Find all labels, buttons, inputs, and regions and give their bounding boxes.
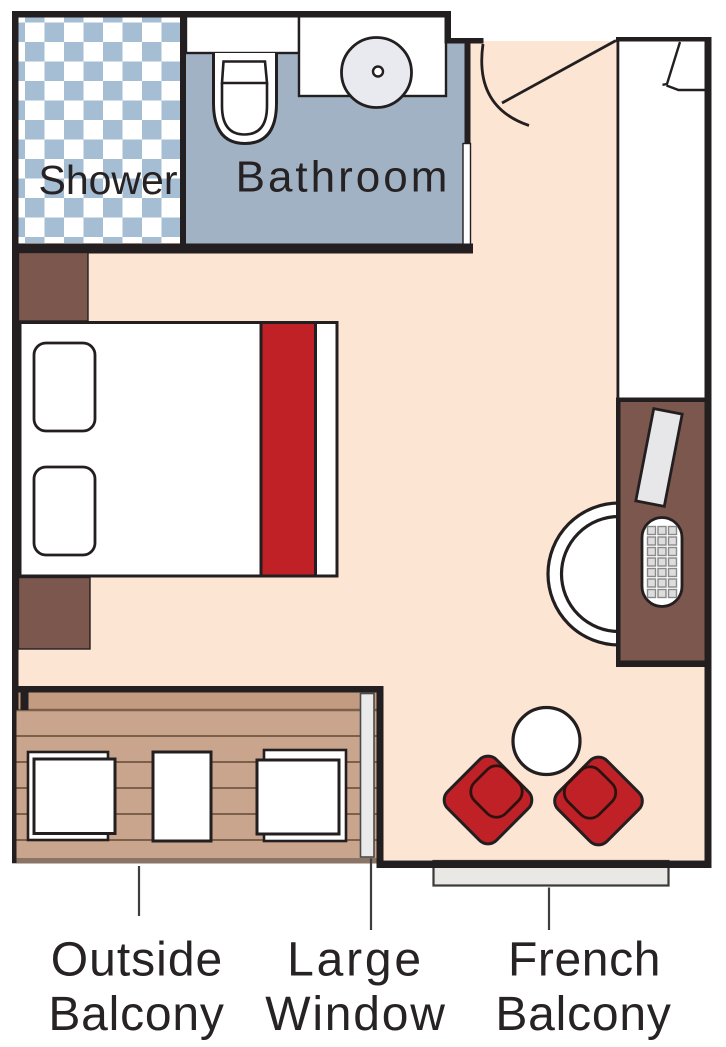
svg-text:Shower: Shower bbox=[38, 157, 177, 203]
svg-text:Balcony: Balcony bbox=[495, 988, 671, 1041]
svg-text:Window: Window bbox=[265, 988, 447, 1041]
svg-text:Balcony: Balcony bbox=[48, 988, 224, 1041]
svg-text:Outside: Outside bbox=[51, 934, 223, 987]
svg-text:Large: Large bbox=[287, 934, 424, 987]
svg-text:Bathroom: Bathroom bbox=[236, 153, 451, 202]
svg-text:French: French bbox=[508, 934, 661, 987]
